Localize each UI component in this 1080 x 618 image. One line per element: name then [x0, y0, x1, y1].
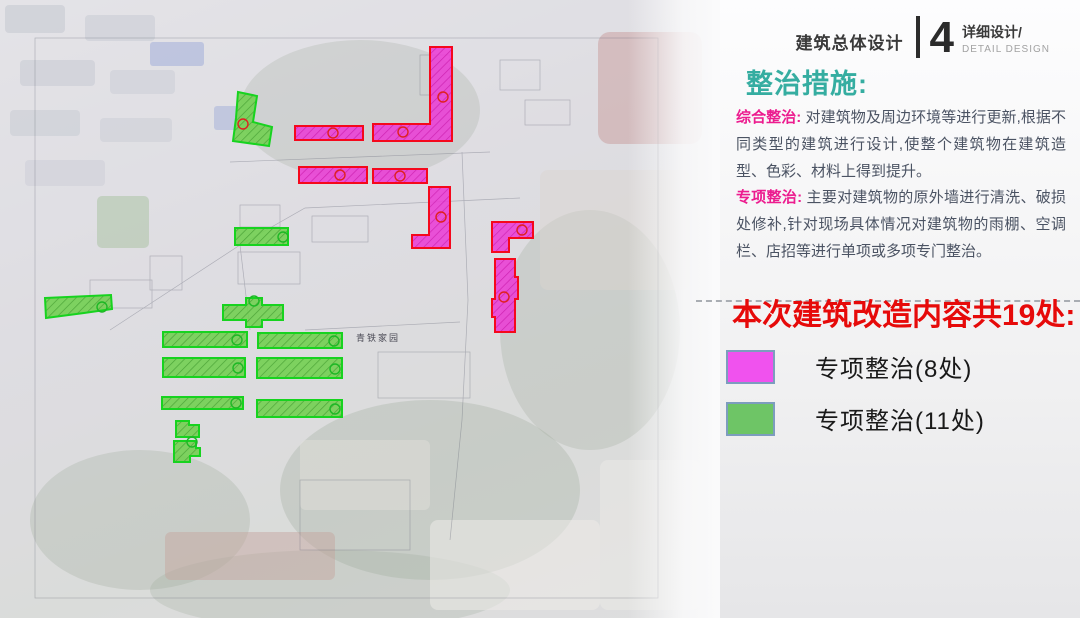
map-highlight-outline: [257, 400, 342, 417]
header-number: 4: [930, 16, 954, 60]
section-title: 整治措施:: [746, 62, 868, 101]
paragraph-lead: 专项整治:: [736, 189, 802, 206]
legend-swatch-green: [726, 402, 775, 436]
legend-item-magenta: 专项整治(8处): [726, 349, 972, 384]
map-place-label: 青铁家园: [356, 331, 400, 344]
aerial-renovation-map: 青铁家园: [0, 0, 712, 618]
header-subtitle-group: 详细设计/ DETAIL DESIGN: [962, 22, 1050, 55]
renovation-count-title: 本次建筑改造内容共19处:: [732, 290, 1080, 334]
header-subtitle: 详细设计/: [962, 22, 1050, 42]
paragraph-lead: 综合整治:: [736, 109, 801, 126]
legend-swatch-magenta: [726, 350, 775, 384]
map-highlight-outline: [299, 167, 367, 183]
map-highlight-outline: [235, 228, 288, 245]
legend-label: 专项整治(11处): [815, 401, 985, 436]
map-canvas: [0, 0, 712, 618]
paragraph-special: 专项整治: 主要对建筑物的原外墙进行清洗、破损处修补,针对现场具体情况对建筑物的…: [736, 184, 1066, 265]
legend-item-green: 专项整治(11处): [726, 401, 985, 436]
slide-header: 建筑总体设计 4 详细设计/ DETAIL DESIGN: [796, 16, 1051, 60]
map-highlight-outline: [492, 259, 518, 332]
map-highlight-outline: [257, 358, 342, 378]
map-highlight-outline: [295, 126, 363, 140]
header-title: 建筑总体设计: [796, 29, 904, 54]
content-panel: 建筑总体设计 4 详细设计/ DETAIL DESIGN 整治措施: 综合整治:…: [712, 0, 1080, 618]
slide: 青铁家园 建筑总体设计 4 详细设计/ DETAIL DESIGN 整治措施: …: [0, 0, 1080, 618]
header-subtitle-en: DETAIL DESIGN: [962, 44, 1050, 55]
header-divider: [916, 16, 920, 58]
paragraph-comprehensive: 综合整治: 对建筑物及周边环境等进行更新,根据不同类型的建筑进行设计,使整个建筑…: [736, 104, 1066, 185]
legend-label: 专项整治(8处): [815, 349, 972, 384]
